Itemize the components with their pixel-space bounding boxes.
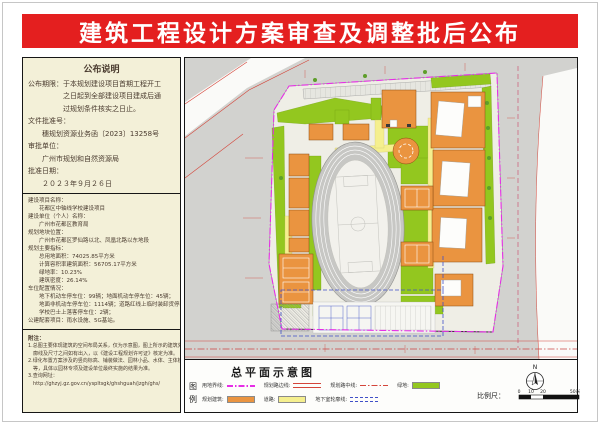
legend-item-basement: 地下室轮廓线:: [315, 396, 378, 403]
text-line: 批准日期：: [28, 165, 175, 177]
text-line: 3.查询网址：: [28, 373, 175, 381]
publication-note-heading: 公布说明: [28, 62, 175, 75]
legend-label: 绿地:: [397, 382, 409, 389]
legend-item-site-boundary: 用地界线:: [202, 382, 255, 389]
scale-bar-graphic: 0 10 20 50米: [507, 388, 587, 404]
legend-item-road-center: 规划路中线:: [330, 382, 388, 389]
legend-item-road: 道路:: [264, 396, 307, 403]
legend-row-2: 规划建筑: 道路: 地下室轮廓线:: [202, 396, 387, 403]
legend-item-building: 规划建筑:: [202, 396, 255, 403]
green-swatch: [412, 382, 440, 389]
text-line: 审批单位：: [28, 140, 175, 152]
legend-label: 地下室轮廓线:: [315, 396, 347, 403]
project-info-lines: 建设项目名称： 花都区中轴线学校建设项目建设单位（个人）名称： 广州市花都区教育…: [28, 198, 175, 326]
site-plan-map: [185, 58, 577, 359]
text-line: 规划地块位置：: [28, 230, 175, 238]
legend-item-green: 绿地:: [397, 382, 440, 389]
text-line: 学校巴士上落客停车位：2辆；: [28, 310, 175, 318]
text-line: 建设项目名称：: [28, 198, 175, 206]
title-banner: 建筑工程设计方案审查及调整批后公布: [22, 14, 578, 48]
text-line: 花都区中轴线学校建设项目: [28, 206, 175, 214]
south-parking-area: [271, 302, 435, 333]
notes-section: 附注： 1.总图主要体现建筑的空间布局关系，仅为示意图，图上所示的建筑外轮 廓线…: [23, 330, 180, 412]
scale-label: 比例尺：: [477, 391, 505, 401]
east-open-area: [536, 68, 577, 359]
notes-heading: 附注：: [28, 334, 175, 342]
legend-chars: 图 例: [189, 381, 197, 407]
scale-tick-20: 20: [540, 389, 546, 395]
notice-page: 建筑工程设计方案审查及调整批后公布 公布说明 公布期限：于本规划建设项目首期工程…: [0, 0, 600, 424]
text-line: 文件批准号：: [28, 115, 175, 127]
red-dashdot-swatch: [360, 385, 388, 387]
legend-label: 道路:: [264, 396, 276, 403]
text-line: 廓线及尺寸之间如有出入，以《建设工程规划许可证》核定为准。: [28, 351, 175, 359]
text-line: 地下机动车停车位：99辆；地面机动车停车位：45辆；: [28, 294, 175, 302]
legend-item-road-edge: 规划路边线:: [264, 382, 322, 389]
text-line: 地面非机动车停车位：1114辆；道路红线上临时装卸货停车位：10辆；: [28, 302, 175, 310]
page-title: 建筑工程设计方案审查及调整批后公布: [79, 14, 521, 48]
text-line: ２０２３年９月２６日: [28, 178, 175, 190]
text-line: 绿地率：10.23%: [28, 270, 175, 278]
text-line: 广州市花都区教育局: [28, 222, 175, 230]
text-line: 规划主要指标：: [28, 246, 175, 254]
text-line: 公建配套项目：雨水设施、5G基站。: [28, 318, 175, 326]
legend-char-tu: 图: [189, 381, 197, 394]
blue-dashed-swatch: [350, 397, 378, 402]
text-line: 计算容积率建筑面积：56705.17平方米: [28, 262, 175, 270]
text-line: http://ghzyj.gz.gov.cn/yspltsgk/ghshguah…: [28, 381, 175, 389]
project-info-section: 建设项目名称： 花都区中轴线学校建设项目建设单位（个人）名称： 广州市花都区教育…: [23, 194, 180, 330]
scale-bar: 比例尺： 0 10 20 50米: [477, 388, 587, 404]
legend-char-li: 例: [189, 394, 197, 407]
legend-label: 规划路边线:: [264, 382, 291, 389]
compass-n-label: N: [533, 364, 538, 371]
scale-tick-50: 50米: [570, 388, 581, 395]
text-line: 车位配置情况：: [28, 286, 175, 294]
text-line: 1.总图主要体现建筑的空间布局关系，仅为示意图，图上所示的建筑外轮: [28, 343, 175, 351]
text-line: 建筑密度：26.14%: [28, 278, 175, 286]
text-line: 广州市规划和自然资源局: [28, 153, 175, 165]
text-line: 2.绿化布置方案涉及的竖向标高、铺装做法、园林小品、水体、主体植物: [28, 358, 175, 366]
text-line: 穗规划资源业务函〔2023〕13258号: [28, 128, 175, 140]
info-column: 公布说明 公布期限：于本规划建设项目首期工程开工 之日起到全部建设项目建成后通 …: [22, 57, 181, 413]
legend-label: 规划路中线:: [330, 382, 357, 389]
publication-note-section: 公布说明 公布期限：于本规划建设项目首期工程开工 之日起到全部建设项目建成后通 …: [23, 58, 180, 194]
scale-tick-0: 0: [518, 389, 521, 395]
text-line: 等，具体以园林专项及建设单位最终实施的结果为准。: [28, 366, 175, 374]
site-plan-panel: [184, 57, 578, 360]
text-line: 之日起到全部建设项目建成后通: [28, 90, 175, 102]
legend-panel: 总平面示意图 图 例 用地界线: 规划路边线: 规划路中线: 绿地:: [184, 359, 578, 413]
hatched-court: [271, 304, 309, 331]
legend-row-1: 用地界线: 规划路边线: 规划路中线: 绿地:: [202, 382, 449, 389]
scale-tick-10: 10: [528, 389, 534, 395]
text-line: 建设单位（个人）名称：: [28, 214, 175, 222]
red-double-line-swatch: [293, 383, 321, 388]
publication-note-lines: 公布期限：于本规划建设项目首期工程开工 之日起到全部建设项目建成后通 过规划条件…: [28, 78, 175, 190]
text-line: 公布期限：于本规划建设项目首期工程开工: [28, 78, 175, 90]
yellow-swatch: [278, 396, 306, 403]
legend-label: 用地界线:: [202, 382, 224, 389]
text-line: 过规划条件核实之日止。: [28, 103, 175, 115]
magenta-dashdot-swatch: [227, 385, 255, 387]
text-line: 总用地面积：74025.85平方米: [28, 254, 175, 262]
notes-lines: 1.总图主要体现建筑的空间布局关系，仅为示意图，图上所示的建筑外轮 廓线及尺寸之…: [28, 343, 175, 388]
legend-label: 规划建筑:: [202, 396, 224, 403]
orange-swatch: [227, 396, 255, 403]
legend-title: 总平面示意图: [231, 364, 315, 380]
text-line: 广州市花都区罗仙路以北、凤凰北路以东地段: [28, 238, 175, 246]
